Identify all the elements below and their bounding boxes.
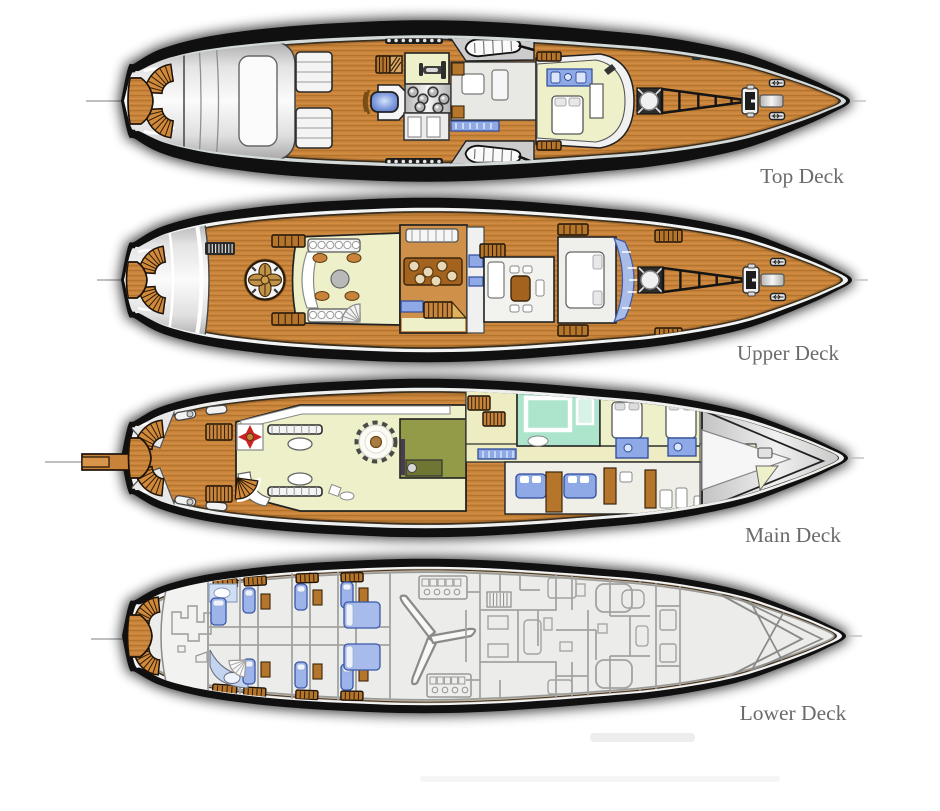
svg-text:Lower Deck: Lower Deck [740,701,847,725]
svg-text:Top Deck: Top Deck [760,164,844,188]
svg-text:Upper Deck: Upper Deck [737,341,840,365]
svg-text:Main Deck: Main Deck [745,523,841,547]
